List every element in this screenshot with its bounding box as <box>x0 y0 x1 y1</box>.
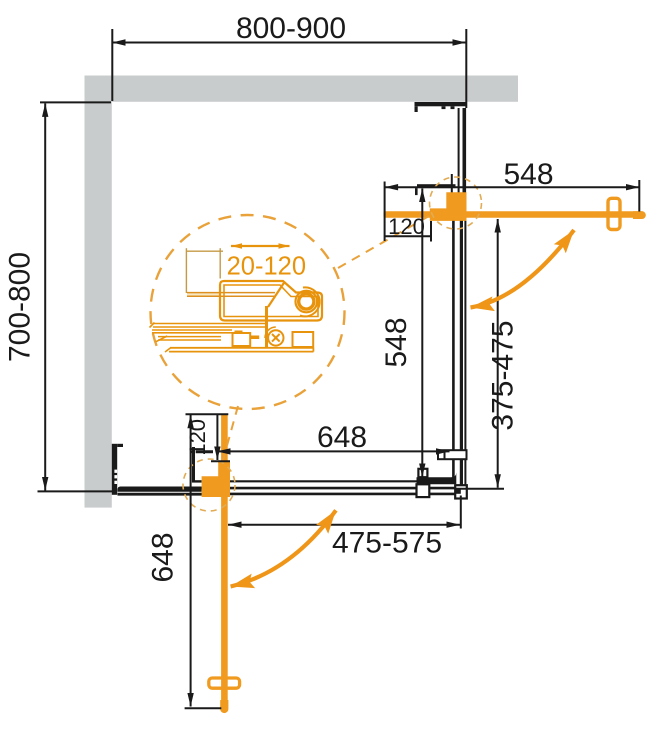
svg-text:548: 548 <box>503 158 553 191</box>
svg-text:700-800: 700-800 <box>4 252 37 362</box>
svg-text:475-575: 475-575 <box>332 527 442 560</box>
svg-text:120: 120 <box>388 214 425 239</box>
svg-text:20-120: 20-120 <box>227 253 306 281</box>
svg-text:648: 648 <box>317 421 367 454</box>
svg-text:648: 648 <box>147 532 180 582</box>
svg-text:548: 548 <box>380 317 413 367</box>
svg-text:120: 120 <box>185 419 210 456</box>
svg-text:375-475: 375-475 <box>487 320 520 430</box>
svg-text:800-900: 800-900 <box>236 12 346 45</box>
